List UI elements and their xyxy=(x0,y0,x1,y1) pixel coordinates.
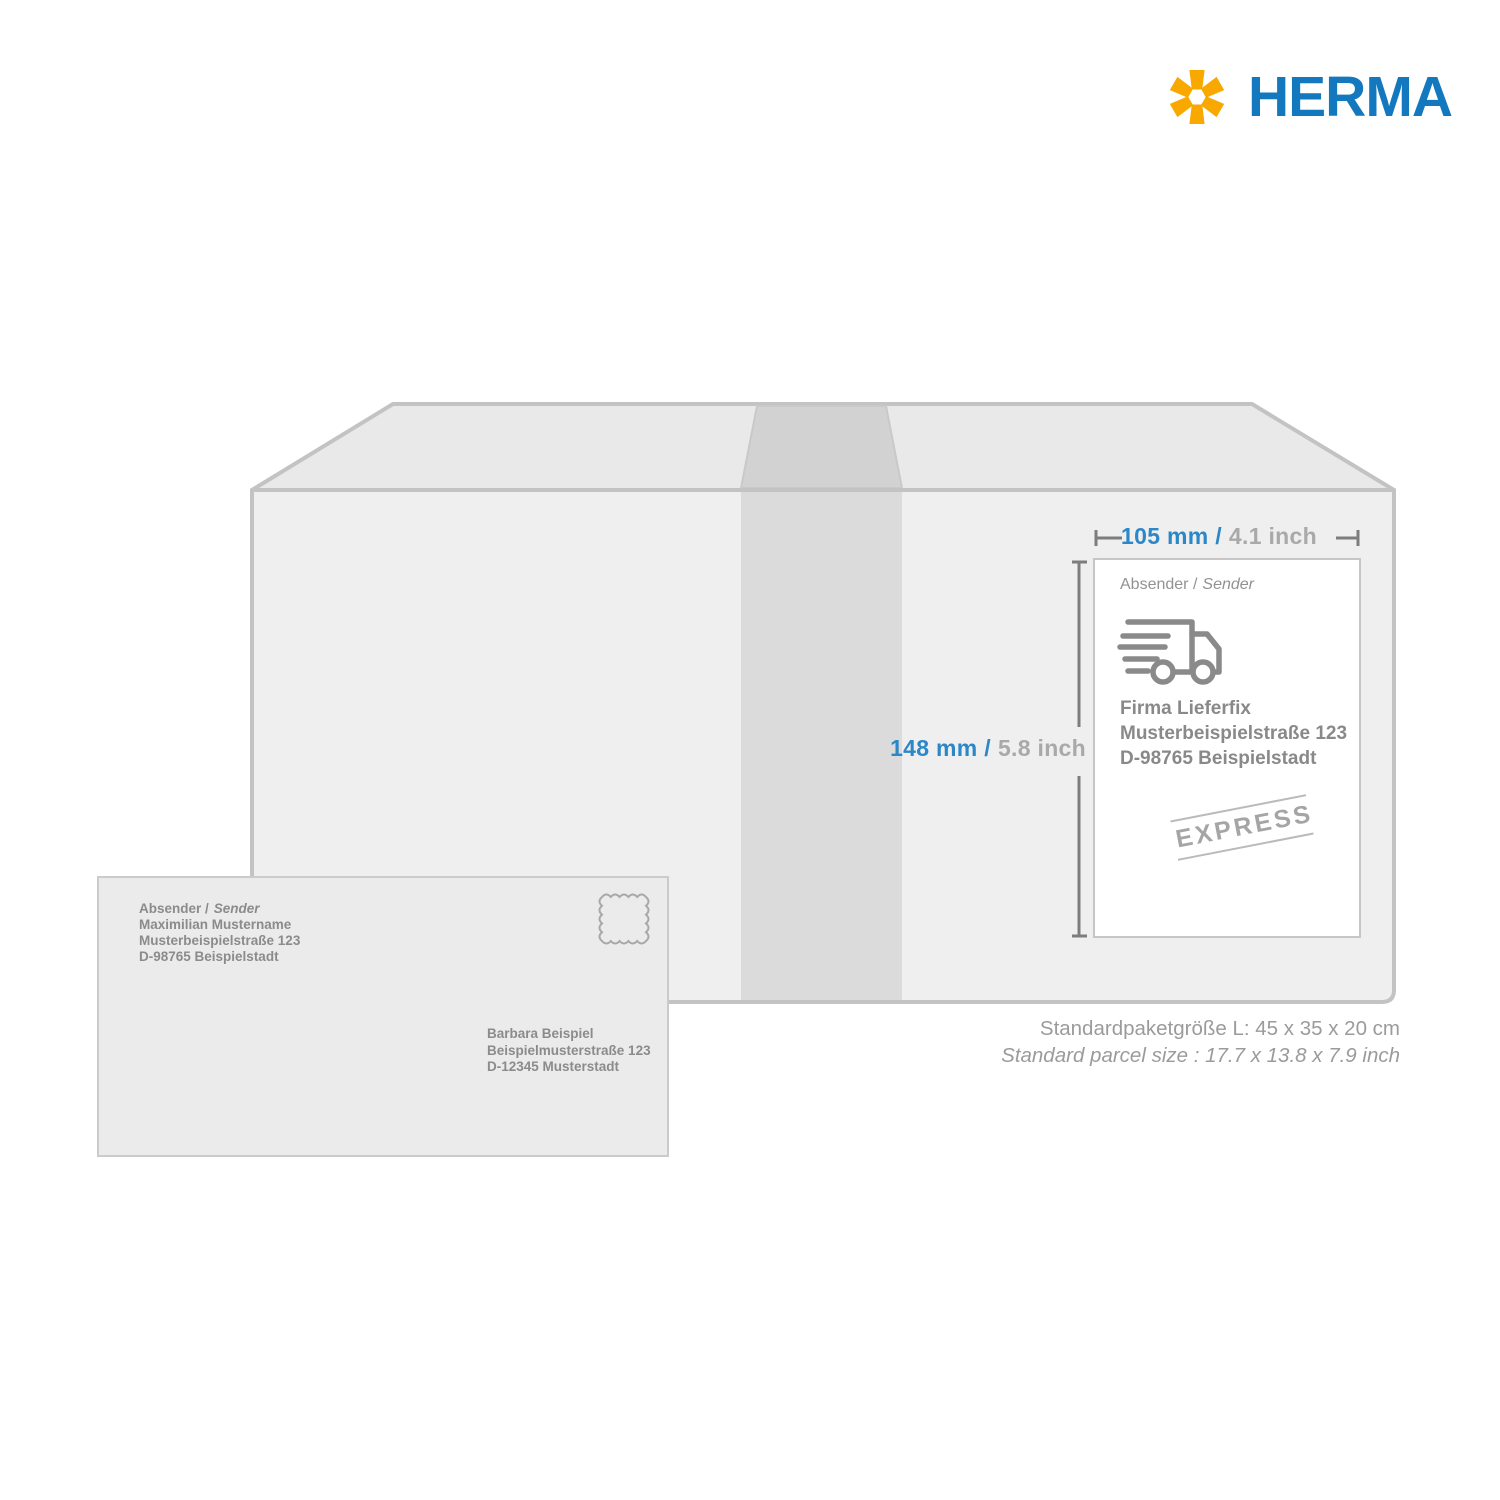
label-sender-heading-en: Sender xyxy=(1202,576,1254,593)
envelope-sender-block: Absender /Sender Maximilian Mustername M… xyxy=(139,901,300,965)
herma-wordmark: HERMA xyxy=(1248,68,1452,126)
label-address-line: Firma Lieferfix xyxy=(1120,696,1347,721)
height-metric: 148 mm / xyxy=(890,735,991,761)
postage-stamp-icon xyxy=(597,890,653,948)
envelope-sender-heading-de: Absender / xyxy=(139,901,209,916)
envelope-sender-heading: Absender /Sender xyxy=(139,901,300,917)
height-dimension: 148 mm /5.8 inch xyxy=(858,735,1086,762)
parcel-size-de: Standardpaketgröße L: 45 x 35 x 20 cm xyxy=(1000,1016,1400,1043)
herma-asterisk-icon xyxy=(1170,68,1224,126)
envelope-recipient-line: D-12345 Musterstadt xyxy=(487,1059,651,1076)
envelope-recipient-block: Barbara Beispiel Beispielmusterstraße 12… xyxy=(487,1026,651,1076)
label-address: Firma Lieferfix Musterbeispielstraße 123… xyxy=(1120,696,1347,771)
express-stamp: EXPRESS xyxy=(1170,794,1313,861)
envelope-sender-line: Maximilian Mustername xyxy=(139,917,300,933)
width-imperial: 4.1 inch xyxy=(1229,523,1317,549)
envelope-recipient-line: Barbara Beispiel xyxy=(487,1026,651,1043)
envelope: Absender /Sender Maximilian Mustername M… xyxy=(97,876,669,1157)
envelope-sender-heading-en: Sender xyxy=(214,901,260,916)
parcel-size-caption: Standardpaketgröße L: 45 x 35 x 20 cm St… xyxy=(1000,1016,1400,1069)
label-sender-heading: Absender /Sender xyxy=(1120,576,1254,594)
herma-logo: HERMA xyxy=(1170,68,1452,126)
width-dimension: 105 mm /4.1 inch xyxy=(1110,523,1328,550)
parcel-tape-top xyxy=(741,406,902,488)
envelope-sender-line: Musterbeispielstraße 123 xyxy=(139,933,300,949)
width-metric: 105 mm / xyxy=(1121,523,1222,549)
envelope-recipient-line: Beispielmusterstraße 123 xyxy=(487,1043,651,1060)
shipping-label: Absender /Sender Firma Lieferfix Musterb… xyxy=(1093,558,1361,938)
label-address-line: D-98765 Beispielstadt xyxy=(1120,746,1347,771)
parcel-size-en: Standard parcel size : 17.7 x 13.8 x 7.9… xyxy=(1000,1043,1400,1070)
label-address-line: Musterbeispielstraße 123 xyxy=(1120,721,1347,746)
label-sender-heading-de: Absender / xyxy=(1120,576,1197,593)
height-imperial: 5.8 inch xyxy=(998,735,1086,761)
delivery-truck-icon xyxy=(1105,601,1245,687)
envelope-sender-line: D-98765 Beispielstadt xyxy=(139,949,300,965)
herma-product-illustration: 105 mm /4.1 inch 148 mm /5.8 inch Absend… xyxy=(0,0,1500,1500)
